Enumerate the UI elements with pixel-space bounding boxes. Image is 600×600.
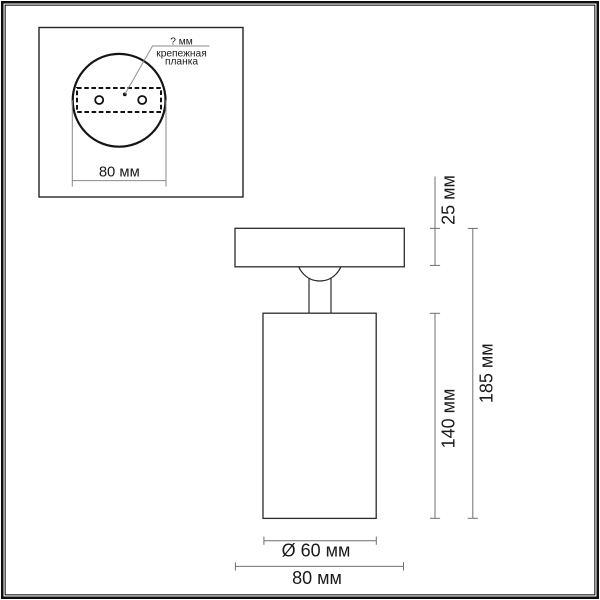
svg-text:185 мм: 185 мм — [477, 343, 497, 403]
svg-text:планка: планка — [165, 56, 198, 67]
svg-text:80 мм: 80 мм — [99, 164, 140, 180]
svg-text:? мм: ? мм — [170, 36, 193, 47]
svg-text:80 мм: 80 мм — [292, 568, 342, 588]
svg-text:Ø 60 мм: Ø 60 мм — [282, 541, 351, 561]
svg-text:25 мм: 25 мм — [438, 175, 458, 225]
svg-text:140 мм: 140 мм — [438, 389, 458, 449]
